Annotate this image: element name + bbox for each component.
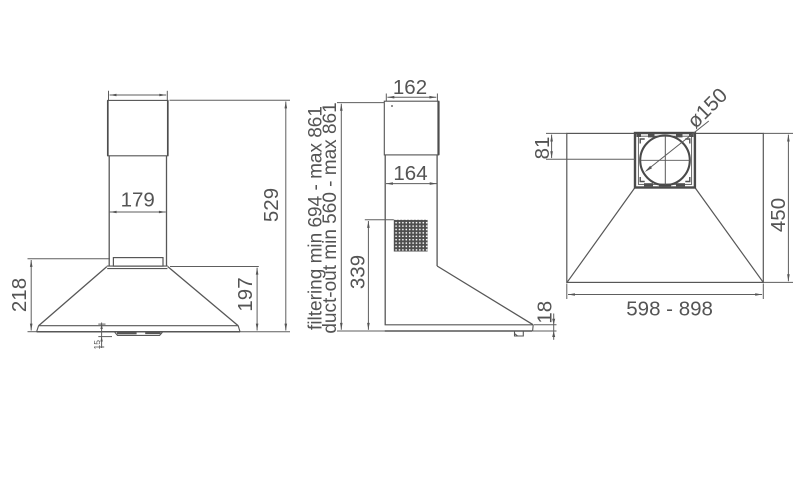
svg-text:179: 179 — [121, 188, 155, 211]
svg-text:15: 15 — [92, 340, 102, 350]
svg-text:218: 218 — [8, 278, 31, 312]
svg-text:164: 164 — [393, 162, 427, 185]
svg-text:339: 339 — [347, 255, 370, 289]
svg-text:18: 18 — [534, 301, 557, 324]
svg-text:529: 529 — [260, 188, 283, 222]
svg-text:162: 162 — [393, 76, 427, 99]
svg-text:duct-out min 560 - max 861: duct-out min 560 - max 861 — [320, 102, 341, 333]
svg-text:197: 197 — [234, 277, 257, 311]
svg-text:450: 450 — [767, 198, 790, 232]
svg-text:81: 81 — [531, 137, 554, 160]
svg-text:598 - 898: 598 - 898 — [626, 298, 713, 321]
